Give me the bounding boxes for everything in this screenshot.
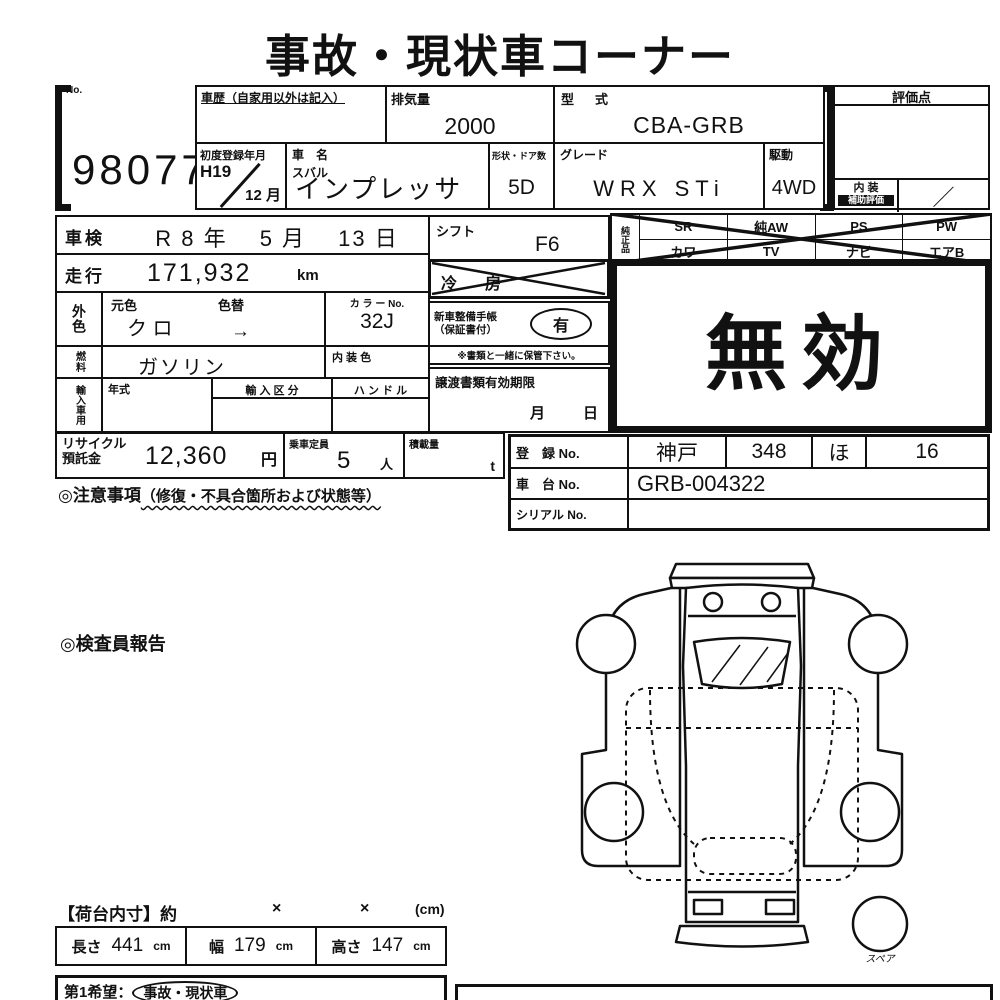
serial-no-row: シリアル No. (511, 500, 987, 528)
registration-class: 348 (727, 437, 813, 467)
cargo-header-label: 【荷台内寸】約 (58, 900, 177, 925)
registration-table: 登 録 No. 神戸 348 ほ 16 車 台 No. GRB-004322 シ… (508, 434, 990, 531)
color-no-label: カ ラ ー No. (326, 293, 428, 310)
shape-doors-cell: 形状・ドア数 5D (488, 142, 555, 210)
first-registration-month: 12 月 (245, 184, 281, 205)
registration-number: 16 (867, 437, 987, 467)
transfer-day-label: 日 (583, 402, 598, 423)
mileage-label: 走行 (65, 262, 105, 287)
load-label: 積載量 (409, 436, 439, 451)
width-value: 179 (234, 935, 266, 957)
headlight-right (766, 900, 794, 914)
recycle-value: 12,360 (145, 442, 227, 471)
score-empty (835, 106, 988, 180)
load-unit: t (490, 458, 495, 474)
lot-number: 98077 (72, 146, 209, 194)
capacity-label: 乗車定員 (289, 436, 329, 451)
shift-value: F6 (535, 233, 560, 257)
exterior-color-label: 外色 (57, 293, 103, 345)
shift-box: シフト F6 (428, 215, 610, 261)
fuel-cell: ガソリン (103, 347, 326, 377)
first-registration-cell: 初度登録年月 H19 12 月 (195, 142, 287, 210)
car-name-value: インプレッサ (295, 169, 462, 206)
spare-tire (853, 897, 907, 951)
load-cell: 積載量 t (405, 434, 503, 477)
length-unit: cm (153, 939, 170, 953)
dimensions-table: 長さ 441 cm 幅 179 cm 高さ 147 cm (55, 926, 447, 966)
registration-area: 神戸 (629, 437, 727, 467)
notes-heading: ◎注意事項（修復・不具合箇所および状態等） (58, 481, 381, 506)
first-choice-value: 事故・現状車 (132, 981, 238, 1000)
drive-value: 4WD (765, 177, 823, 200)
member-box (455, 984, 993, 1000)
car-name-label: 車 名 (292, 148, 328, 162)
repaint-arrow: → (231, 321, 250, 343)
grade-label: グレード (560, 148, 608, 162)
car-name-cell: 車 名 スバル インプレッサ (285, 142, 490, 210)
recycle-row: リサイクル 預託金 12,360 円 乗車定員 5 人 積載量 t (55, 432, 505, 479)
page-title: 事故・現状車コーナー (0, 20, 1000, 85)
inspector-report-heading: ◎検査員報告 (60, 630, 166, 656)
displacement-cell: 排気量 2000 (385, 85, 555, 144)
vehicle-damage-diagram: スペア (570, 556, 1000, 976)
notes-paren: （修復・不具合箇所および状態等） (141, 488, 381, 505)
height-label: 高さ (331, 936, 361, 957)
void-stamp: 無効 (610, 259, 992, 433)
notes-prefix: ◎注意事項 (58, 486, 141, 505)
serial-no-value (629, 500, 987, 528)
import-year-label: 年式 (108, 381, 130, 397)
fuel-row: 燃料 ガソリン 内 装 色 (55, 345, 430, 379)
capacity-value: 5 (337, 447, 350, 475)
length-value: 441 (111, 935, 143, 957)
model-code-cell: 型 式 CBA-GRB (553, 85, 825, 144)
front-bumper (676, 926, 808, 947)
grade-value: WRX STi (555, 176, 763, 202)
interior-color-label: 内 装 色 (332, 349, 371, 365)
interior-score-value: ／ (899, 180, 988, 212)
import-year-cell: 年式 (103, 379, 213, 431)
transfer-docs-label: 譲渡書類有効期限 (435, 372, 535, 391)
exterior-color-row: 外色 元色 色替 ク ロ → カ ラ ー No. 32J (55, 291, 430, 347)
fuel-label: 燃料 (57, 347, 103, 377)
first-choice-box: 第1希望： 事故・現状車 (55, 975, 447, 1000)
displacement-label: 排気量 (391, 92, 430, 107)
rear-window (694, 638, 790, 688)
chassis-no-label: 車 台 No. (511, 469, 629, 498)
wheel-rear-left (577, 615, 635, 673)
import-row: 輸入車用 年式 輸 入 区 分 ハ ン ド ル (55, 377, 430, 433)
width-unit: cm (276, 939, 293, 953)
interior-color-cell: 内 装 色 (326, 347, 428, 377)
capacity-cell: 乗車定員 5 人 (285, 434, 405, 477)
registration-no-label: 登 録 No. (511, 437, 629, 467)
shift-label: シフト (436, 221, 475, 240)
headlight-left (694, 900, 722, 914)
repaint-label: 色替 (218, 295, 244, 314)
first-registration-year: H19 (200, 162, 231, 182)
wheel-front-right (841, 783, 899, 841)
first-registration-label: 初度登録年月 (200, 150, 266, 162)
history-cell: 車歴（自家用以外は記入） (195, 85, 387, 144)
score-label: 評価点 (835, 87, 988, 106)
registration-kana: ほ (813, 437, 867, 467)
serial-no-label: シリアル No. (511, 500, 629, 528)
maintenance-book-value: 有 (530, 308, 592, 340)
length-label: 長さ (71, 936, 101, 957)
width-label: 幅 (209, 936, 224, 957)
cargo-unit: (cm) (415, 901, 445, 917)
exterior-color-cell: 元色 色替 ク ロ → (103, 293, 326, 345)
wheel-front-left (585, 783, 643, 841)
shape-doors-label: 形状・ドア数 (492, 151, 546, 161)
score-box: 評価点 内 装 補助評価 ／ (833, 85, 990, 210)
equipment-cross-mark (610, 213, 992, 265)
transfer-docs-box: 譲渡書類有効期限 月 日 (428, 367, 610, 433)
color-no-cell: カ ラ ー No. 32J (326, 293, 428, 345)
orig-color-value: ク ロ (127, 312, 173, 341)
auction-sheet: 事故・現状車コーナー No. 98077 車歴（自家用以外は記入） 排気量 20… (0, 0, 1000, 1000)
handle-label: ハ ン ド ル (333, 379, 428, 399)
displacement-value: 2000 (387, 113, 553, 140)
registration-no-row: 登 録 No. 神戸 348 ほ 16 (511, 437, 987, 469)
fuel-value: ガソリン (138, 351, 226, 380)
lot-bracket-left (55, 85, 71, 211)
shaken-row: 車検 R 8 年 5 月 13 日 (55, 215, 430, 255)
mileage-value: 171,932 (147, 259, 251, 288)
maintenance-book-box: 新車整備手帳 （保証書付） 有 (428, 301, 610, 347)
history-label: 車歴（自家用以外は記入） (201, 91, 345, 105)
cargo-x2: × (360, 900, 369, 918)
first-choice-label: 第1希望： (64, 981, 132, 1000)
shape-doors-value: 5D (490, 176, 553, 200)
cargo-x1: × (272, 900, 281, 918)
import-class-cell: 輸 入 区 分 (213, 379, 333, 431)
recycle-label: リサイクル 預託金 (62, 437, 126, 467)
aircon-box: 冷 房 (428, 259, 610, 299)
shaken-label: 車検 (65, 224, 105, 249)
height-unit: cm (413, 939, 430, 953)
mileage-row: 走行 171,932 km (55, 253, 430, 293)
rear-spoiler (670, 564, 814, 578)
grade-cell: グレード WRX STi (553, 142, 765, 210)
drive-cell: 駆動 4WD (763, 142, 825, 210)
height-value: 147 (371, 935, 403, 957)
aircon-cross-mark (431, 262, 606, 295)
transfer-month-label: 月 (530, 402, 545, 423)
shaken-value: R 8 年 5 月 13 日 (127, 221, 427, 253)
spare-label: スペア (865, 954, 896, 965)
import-label: 輸入車用 (57, 379, 103, 431)
interior-score-label: 内 装 補助評価 (835, 180, 899, 212)
handle-cell: ハ ン ド ル (333, 379, 428, 431)
drive-label: 駆動 (769, 148, 793, 162)
lot-no-label: No. (66, 85, 82, 96)
model-code-value: CBA-GRB (555, 112, 823, 139)
color-no-value: 32J (326, 310, 428, 334)
recycle-cell: リサイクル 預託金 12,360 円 (57, 434, 285, 477)
width-cell: 幅 179 cm (187, 928, 317, 964)
chassis-no-value: GRB-004322 (629, 469, 987, 498)
wheel-rear-right (849, 615, 907, 673)
capacity-unit: 人 (380, 454, 393, 473)
chassis-no-row: 車 台 No. GRB-004322 (511, 469, 987, 500)
book-note: ※書類と一緒に保管下さい。 (428, 345, 610, 365)
recycle-unit: 円 (261, 446, 277, 470)
model-code-label: 型 式 (561, 92, 612, 107)
height-cell: 高さ 147 cm (317, 928, 445, 964)
length-cell: 長さ 441 cm (57, 928, 187, 964)
import-class-label: 輸 入 区 分 (213, 379, 331, 399)
mileage-unit: km (297, 267, 319, 284)
maintenance-book-label: 新車整備手帳 （保証書付） (430, 311, 530, 337)
